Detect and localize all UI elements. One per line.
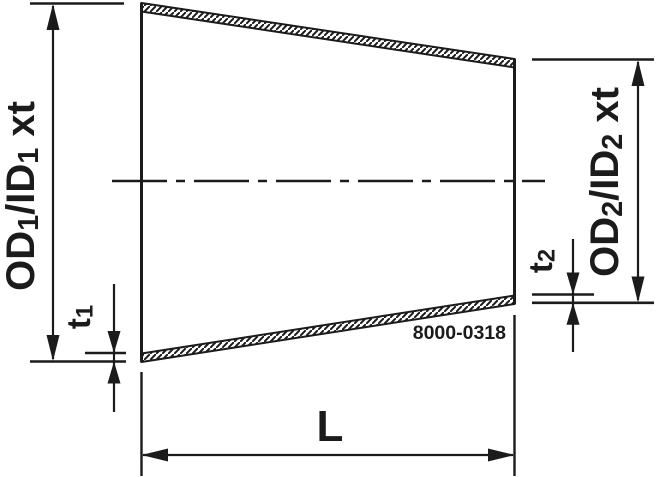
t2-dimension-label: t2 (522, 249, 561, 273)
od1-arrowhead-up (47, 4, 60, 30)
od1-dimension-label: OD1/ID1 xt (0, 101, 45, 291)
reducer-drawing: OD1/ID1 xt OD2/ID2 xt t1 t2 L 8000-0318 (0, 0, 659, 477)
t1-arrowhead-down (108, 331, 121, 353)
t2-arrowhead-down (567, 273, 580, 295)
od2-arrowhead-up (632, 60, 645, 86)
od1-arrowhead-down (47, 335, 60, 361)
technical-drawing-canvas: OD1/ID1 xt OD2/ID2 xt t1 t2 L 8000-0318 (0, 0, 659, 477)
t1-arrowhead-up (108, 362, 121, 384)
t2-arrowhead-up (567, 303, 580, 325)
reducer-body (142, 3, 515, 362)
top-wall-section (142, 3, 515, 68)
od2-dimension-label: OD2/ID2 xt (583, 87, 629, 277)
length-arrowhead-left (142, 449, 169, 462)
t1-dimension-label: t1 (60, 305, 99, 329)
t1-dimension (85, 284, 126, 412)
part-number-label: 8000-0318 (413, 322, 506, 344)
od2-arrowhead-down (632, 277, 645, 303)
length-arrowhead-right (488, 449, 515, 462)
length-dimension-label: L (317, 402, 344, 451)
